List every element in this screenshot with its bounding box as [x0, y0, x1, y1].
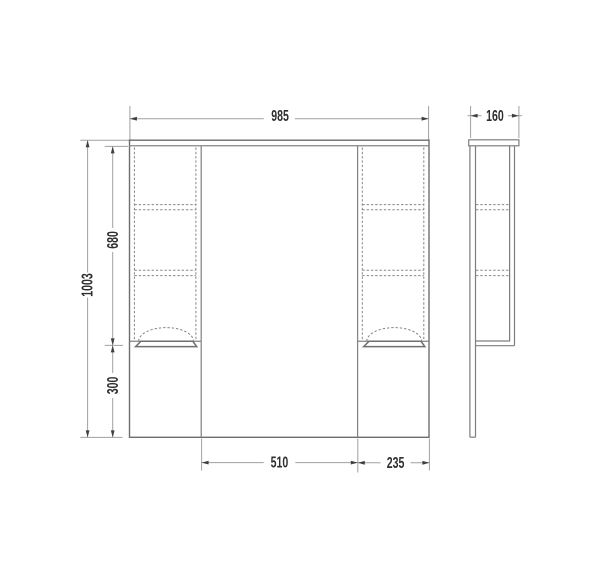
svg-text:300: 300	[104, 377, 122, 395]
svg-text:985: 985	[271, 107, 289, 125]
svg-text:160: 160	[486, 107, 504, 125]
svg-text:680: 680	[104, 231, 122, 249]
svg-text:1003: 1003	[78, 273, 96, 297]
svg-text:510: 510	[271, 453, 289, 471]
svg-text:235: 235	[387, 454, 405, 472]
